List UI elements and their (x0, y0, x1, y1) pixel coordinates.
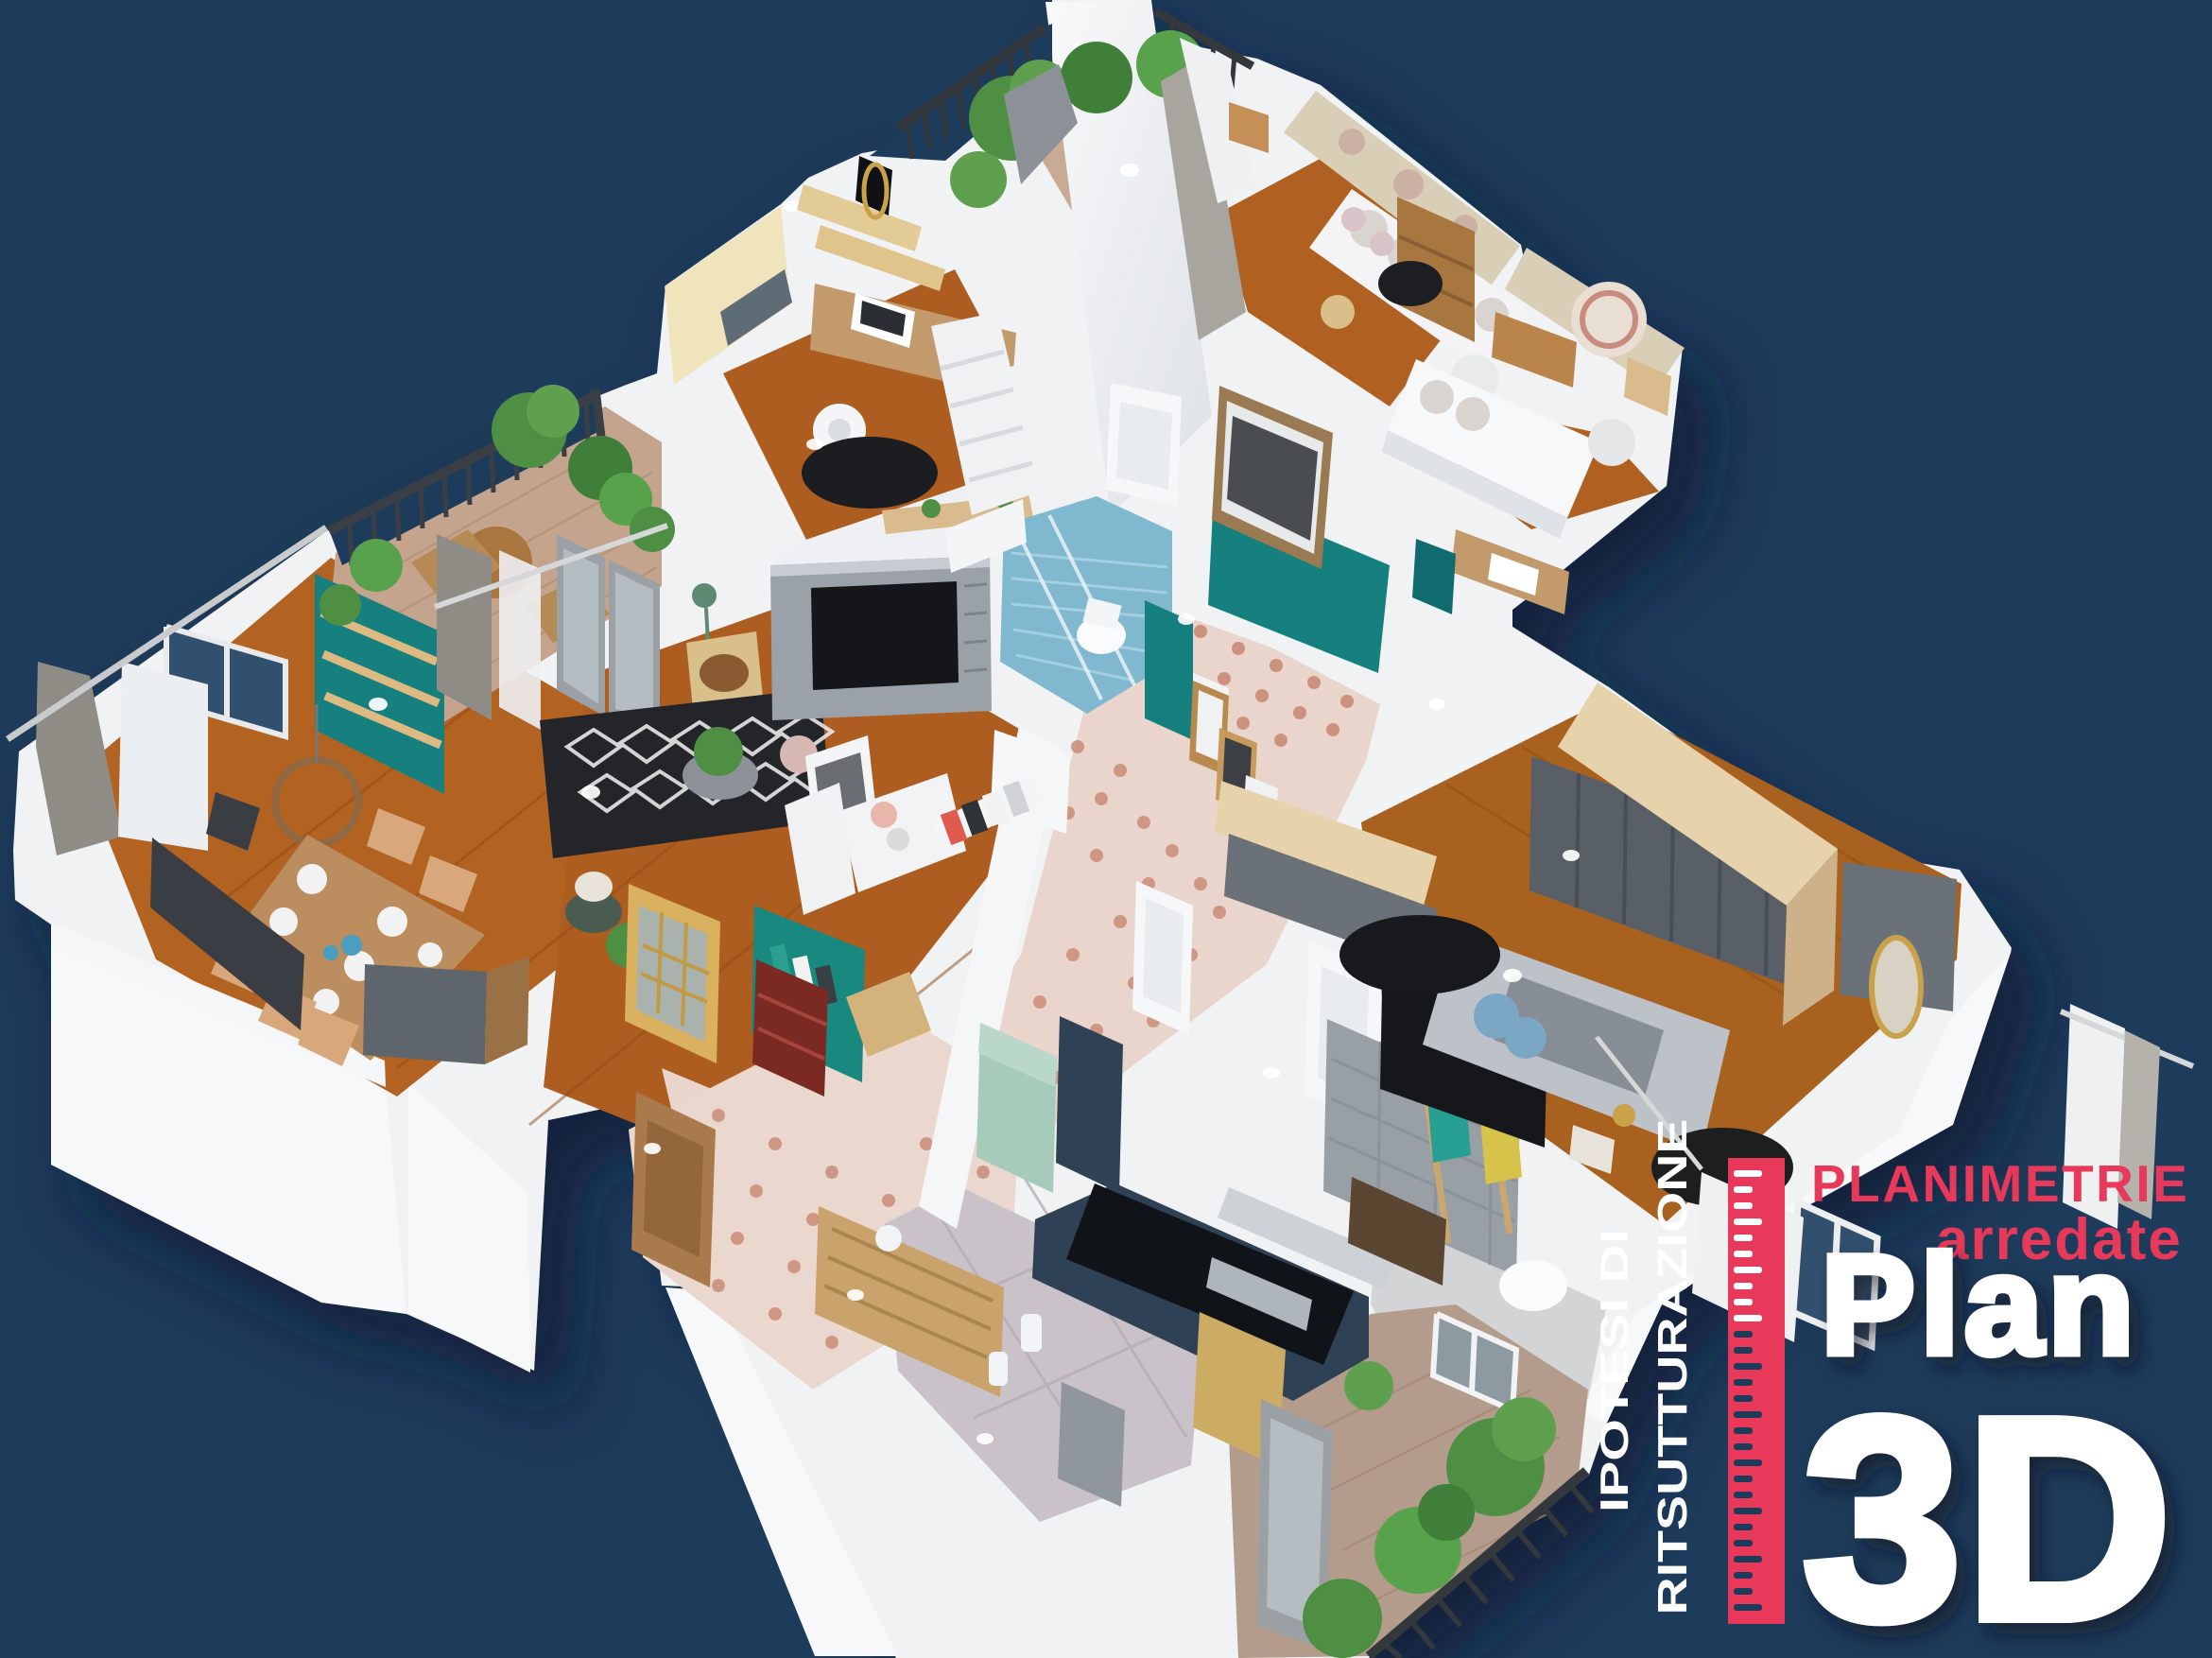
svg-text:PLANIMETRIE: PLANIMETRIE (1811, 1154, 2189, 1213)
svg-text:3D: 3D (1802, 1357, 2174, 1658)
svg-text:RITSUTTURAZIONE: RITSUTTURAZIONE (1650, 1119, 1696, 1615)
svg-text:IPOTESI DI: IPOTESI DI (1592, 1229, 1636, 1512)
